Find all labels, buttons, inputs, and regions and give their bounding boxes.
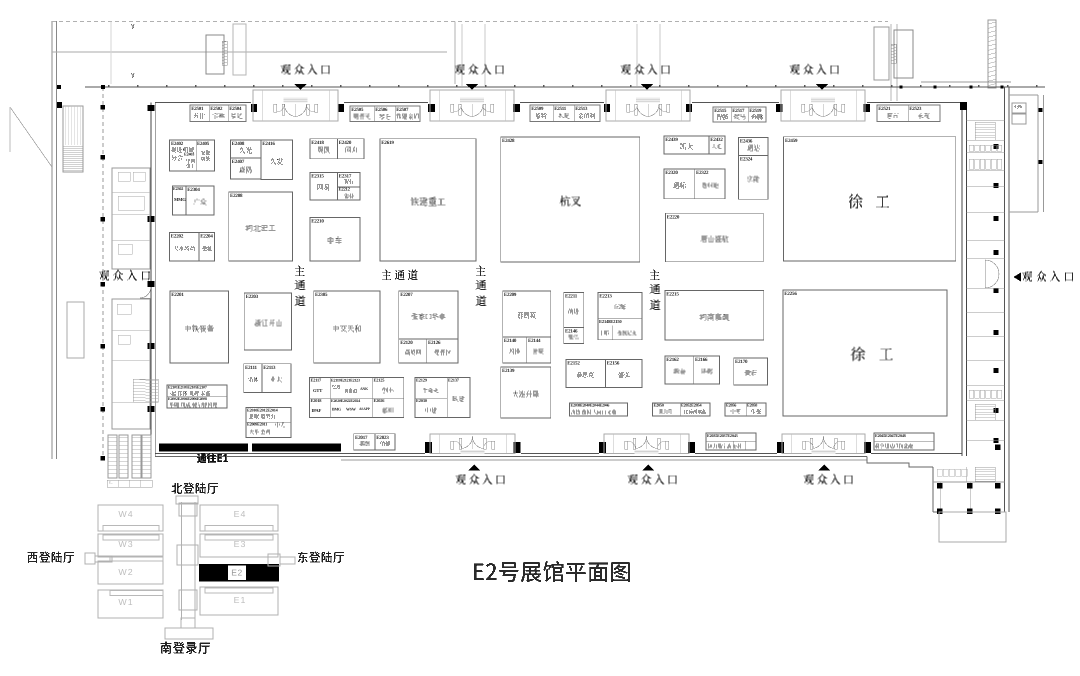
- svg-text:E2513: E2513: [575, 106, 588, 112]
- svg-text:E2125: E2125: [374, 378, 386, 383]
- svg-text:E2209: E2209: [504, 292, 517, 298]
- svg-text:E2521: E2521: [878, 106, 891, 112]
- svg-text:GTT: GTT: [313, 388, 322, 393]
- svg-text:E2215: E2215: [666, 292, 679, 298]
- svg-text:E2511: E2511: [554, 106, 567, 112]
- svg-text:E2407: E2407: [232, 159, 245, 165]
- svg-text:E4: E4: [234, 509, 247, 519]
- svg-text:E2402: E2402: [171, 141, 184, 147]
- svg-text:E2213: E2213: [599, 294, 612, 300]
- svg-text:W1: W1: [118, 597, 133, 607]
- svg-text:E2405: E2405: [197, 141, 210, 147]
- svg-text:E2144: E2144: [528, 338, 541, 344]
- svg-text:ASAPP: ASAPP: [359, 407, 371, 411]
- svg-text:E2050: E2050: [654, 403, 664, 408]
- svg-text:E2202: E2202: [171, 234, 184, 240]
- svg-text:E2320: E2320: [665, 170, 678, 176]
- svg-text:E2166: E2166: [695, 357, 708, 363]
- svg-text:E2152: E2152: [567, 361, 580, 367]
- svg-text:E2416: E2416: [262, 141, 275, 147]
- svg-text:E2504: E2504: [229, 106, 242, 112]
- svg-text:E2519: E2519: [749, 108, 762, 114]
- svg-text:E2117: E2117: [311, 378, 322, 383]
- svg-text:E2030: E2030: [416, 398, 428, 403]
- svg-text:E2002E2004E2006E2008: E2002E2004E2006E2008: [168, 396, 207, 401]
- svg-text:E2119E2121E2123: E2119E2121E2123: [331, 377, 360, 382]
- svg-text:E2009E2011: E2009E2011: [247, 422, 267, 427]
- svg-text:E2256: E2256: [784, 291, 797, 297]
- svg-text:E2403: E2403: [184, 151, 194, 156]
- svg-text:E2038E2040E2044E2046: E2038E2040E2044E2046: [571, 403, 610, 408]
- svg-text:E2207: E2207: [400, 292, 413, 298]
- svg-text:E2126: E2126: [428, 340, 441, 346]
- svg-text:E2501: E2501: [191, 106, 204, 112]
- svg-text:E2140: E2140: [504, 338, 517, 344]
- svg-text:E2304: E2304: [187, 187, 200, 193]
- svg-text:W4: W4: [118, 509, 133, 519]
- svg-text:E2517: E2517: [732, 108, 745, 114]
- svg-text:E2120: E2120: [400, 340, 413, 346]
- svg-text:W3: W3: [118, 539, 133, 549]
- svg-text:E3: E3: [234, 539, 247, 549]
- svg-text:E2436: E2436: [740, 139, 753, 145]
- svg-text:E2459: E2459: [785, 138, 798, 144]
- svg-text:E2507: E2507: [396, 107, 409, 113]
- svg-text:E2324: E2324: [740, 157, 753, 163]
- svg-text:E2305: E2305: [315, 292, 328, 298]
- svg-text:E2505: E2505: [351, 107, 364, 113]
- svg-text:E2509: E2509: [531, 106, 544, 112]
- svg-text:E2058: E2058: [747, 403, 757, 408]
- svg-text:E2137: E2137: [448, 378, 460, 383]
- svg-text:E2162: E2162: [666, 357, 679, 363]
- svg-text:E2317: E2317: [339, 174, 352, 180]
- svg-text:E2045E2047E2048: E2045E2047E2048: [875, 433, 906, 438]
- svg-text:E2515: E2515: [714, 108, 727, 114]
- svg-text:E2023: E2023: [376, 435, 389, 441]
- svg-text:E2322: E2322: [696, 170, 709, 176]
- svg-text:E2418: E2418: [311, 140, 324, 146]
- svg-text:E...: E...: [109, 480, 113, 484]
- svg-text:E2020E2022E2024: E2020E2022E2024: [331, 398, 360, 403]
- svg-text:E2026: E2026: [374, 398, 386, 403]
- svg-text:BMG: BMG: [332, 406, 341, 411]
- svg-text:E2523: E2523: [909, 106, 922, 112]
- svg-text:E2035E2037E2043: E2035E2037E2043: [707, 433, 738, 438]
- svg-text:E2211: E2211: [565, 294, 578, 300]
- svg-text:E2170: E2170: [735, 359, 748, 365]
- svg-text:MMG: MMG: [174, 197, 186, 202]
- svg-text:E2113: E2113: [263, 365, 276, 371]
- svg-text:ANK: ANK: [360, 387, 368, 391]
- svg-text:E2156: E2156: [607, 361, 620, 367]
- svg-text:E2506: E2506: [375, 107, 388, 113]
- svg-text:E2017: E2017: [355, 435, 368, 441]
- svg-text:E2148E2150: E2148E2150: [599, 319, 622, 324]
- svg-text:E2203: E2203: [246, 294, 259, 300]
- svg-text:E2111: E2111: [245, 365, 257, 371]
- svg-text:E2502: E2502: [210, 106, 223, 112]
- svg-text:E2201: E2201: [171, 292, 184, 298]
- svg-text:WSW: WSW: [346, 406, 356, 411]
- svg-text:E2439: E2439: [665, 137, 678, 143]
- svg-text:E2315: E2315: [311, 174, 324, 180]
- svg-text:E2420: E2420: [339, 140, 352, 146]
- svg-text:E2139: E2139: [502, 368, 515, 374]
- svg-text:E2210: E2210: [311, 219, 324, 225]
- svg-text:E2619: E2619: [381, 140, 394, 146]
- svg-text:W2: W2: [118, 567, 133, 577]
- svg-text:E2212: E2212: [339, 186, 351, 191]
- svg-text:E2408: E2408: [232, 141, 245, 147]
- svg-text:E2129: E2129: [416, 378, 428, 383]
- svg-text:E2208: E2208: [230, 193, 243, 199]
- svg-text:E2146: E2146: [565, 329, 578, 335]
- svg-text:E2302: E2302: [173, 186, 183, 191]
- svg-text:E2220: E2220: [667, 214, 680, 220]
- svg-text:E2432: E2432: [710, 137, 723, 143]
- svg-text:E2010E2012E2014: E2010E2012E2014: [247, 407, 279, 412]
- svg-text:E2056: E2056: [726, 403, 736, 408]
- svg-text:E1: E1: [234, 595, 247, 605]
- svg-text:E2204: E2204: [200, 234, 213, 240]
- svg-text:E2018: E2018: [311, 398, 323, 403]
- svg-text:E2: E2: [231, 568, 242, 578]
- svg-text:E2428: E2428: [502, 138, 515, 144]
- svg-text:E2101E2103E2105E2107: E2101E2103E2105E2107: [168, 385, 207, 390]
- svg-text:IPAF: IPAF: [312, 408, 322, 413]
- svg-text:E2052E2054: E2052E2054: [681, 403, 702, 408]
